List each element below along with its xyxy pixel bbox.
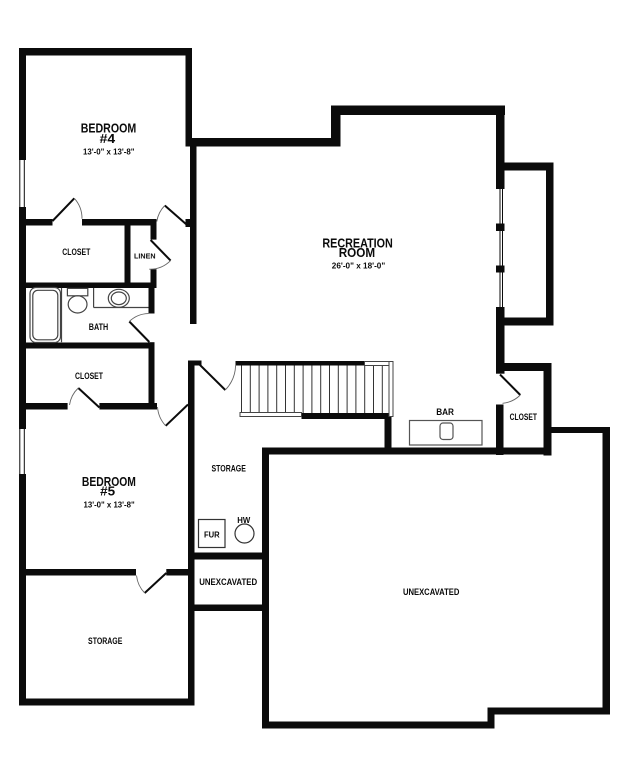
svg-text:CLOSET: CLOSET bbox=[510, 412, 538, 422]
svg-text:LINEN: LINEN bbox=[134, 251, 156, 260]
svg-text:BAR: BAR bbox=[436, 407, 454, 417]
svg-text:13'-0" x 13'-8": 13'-0" x 13'-8" bbox=[84, 500, 135, 510]
svg-text:STORAGE: STORAGE bbox=[212, 463, 246, 473]
svg-text:STORAGE: STORAGE bbox=[88, 636, 122, 646]
svg-text:#5: #5 bbox=[100, 485, 115, 499]
svg-text:CLOSET: CLOSET bbox=[75, 371, 103, 381]
svg-text:ROOM: ROOM bbox=[339, 246, 375, 260]
svg-text:UNEXCAVATED: UNEXCAVATED bbox=[199, 577, 257, 587]
svg-text:UNEXCAVATED: UNEXCAVATED bbox=[403, 587, 460, 597]
svg-text:BATH: BATH bbox=[89, 322, 109, 332]
svg-text:CLOSET: CLOSET bbox=[62, 247, 90, 257]
svg-text:13'-0" x 13'-8": 13'-0" x 13'-8" bbox=[83, 146, 135, 156]
svg-text:HW: HW bbox=[237, 515, 251, 525]
svg-text:#4: #4 bbox=[100, 132, 116, 146]
svg-text:26'-0" x 18'-0": 26'-0" x 18'-0" bbox=[332, 261, 385, 271]
svg-text:FUR: FUR bbox=[204, 529, 220, 539]
